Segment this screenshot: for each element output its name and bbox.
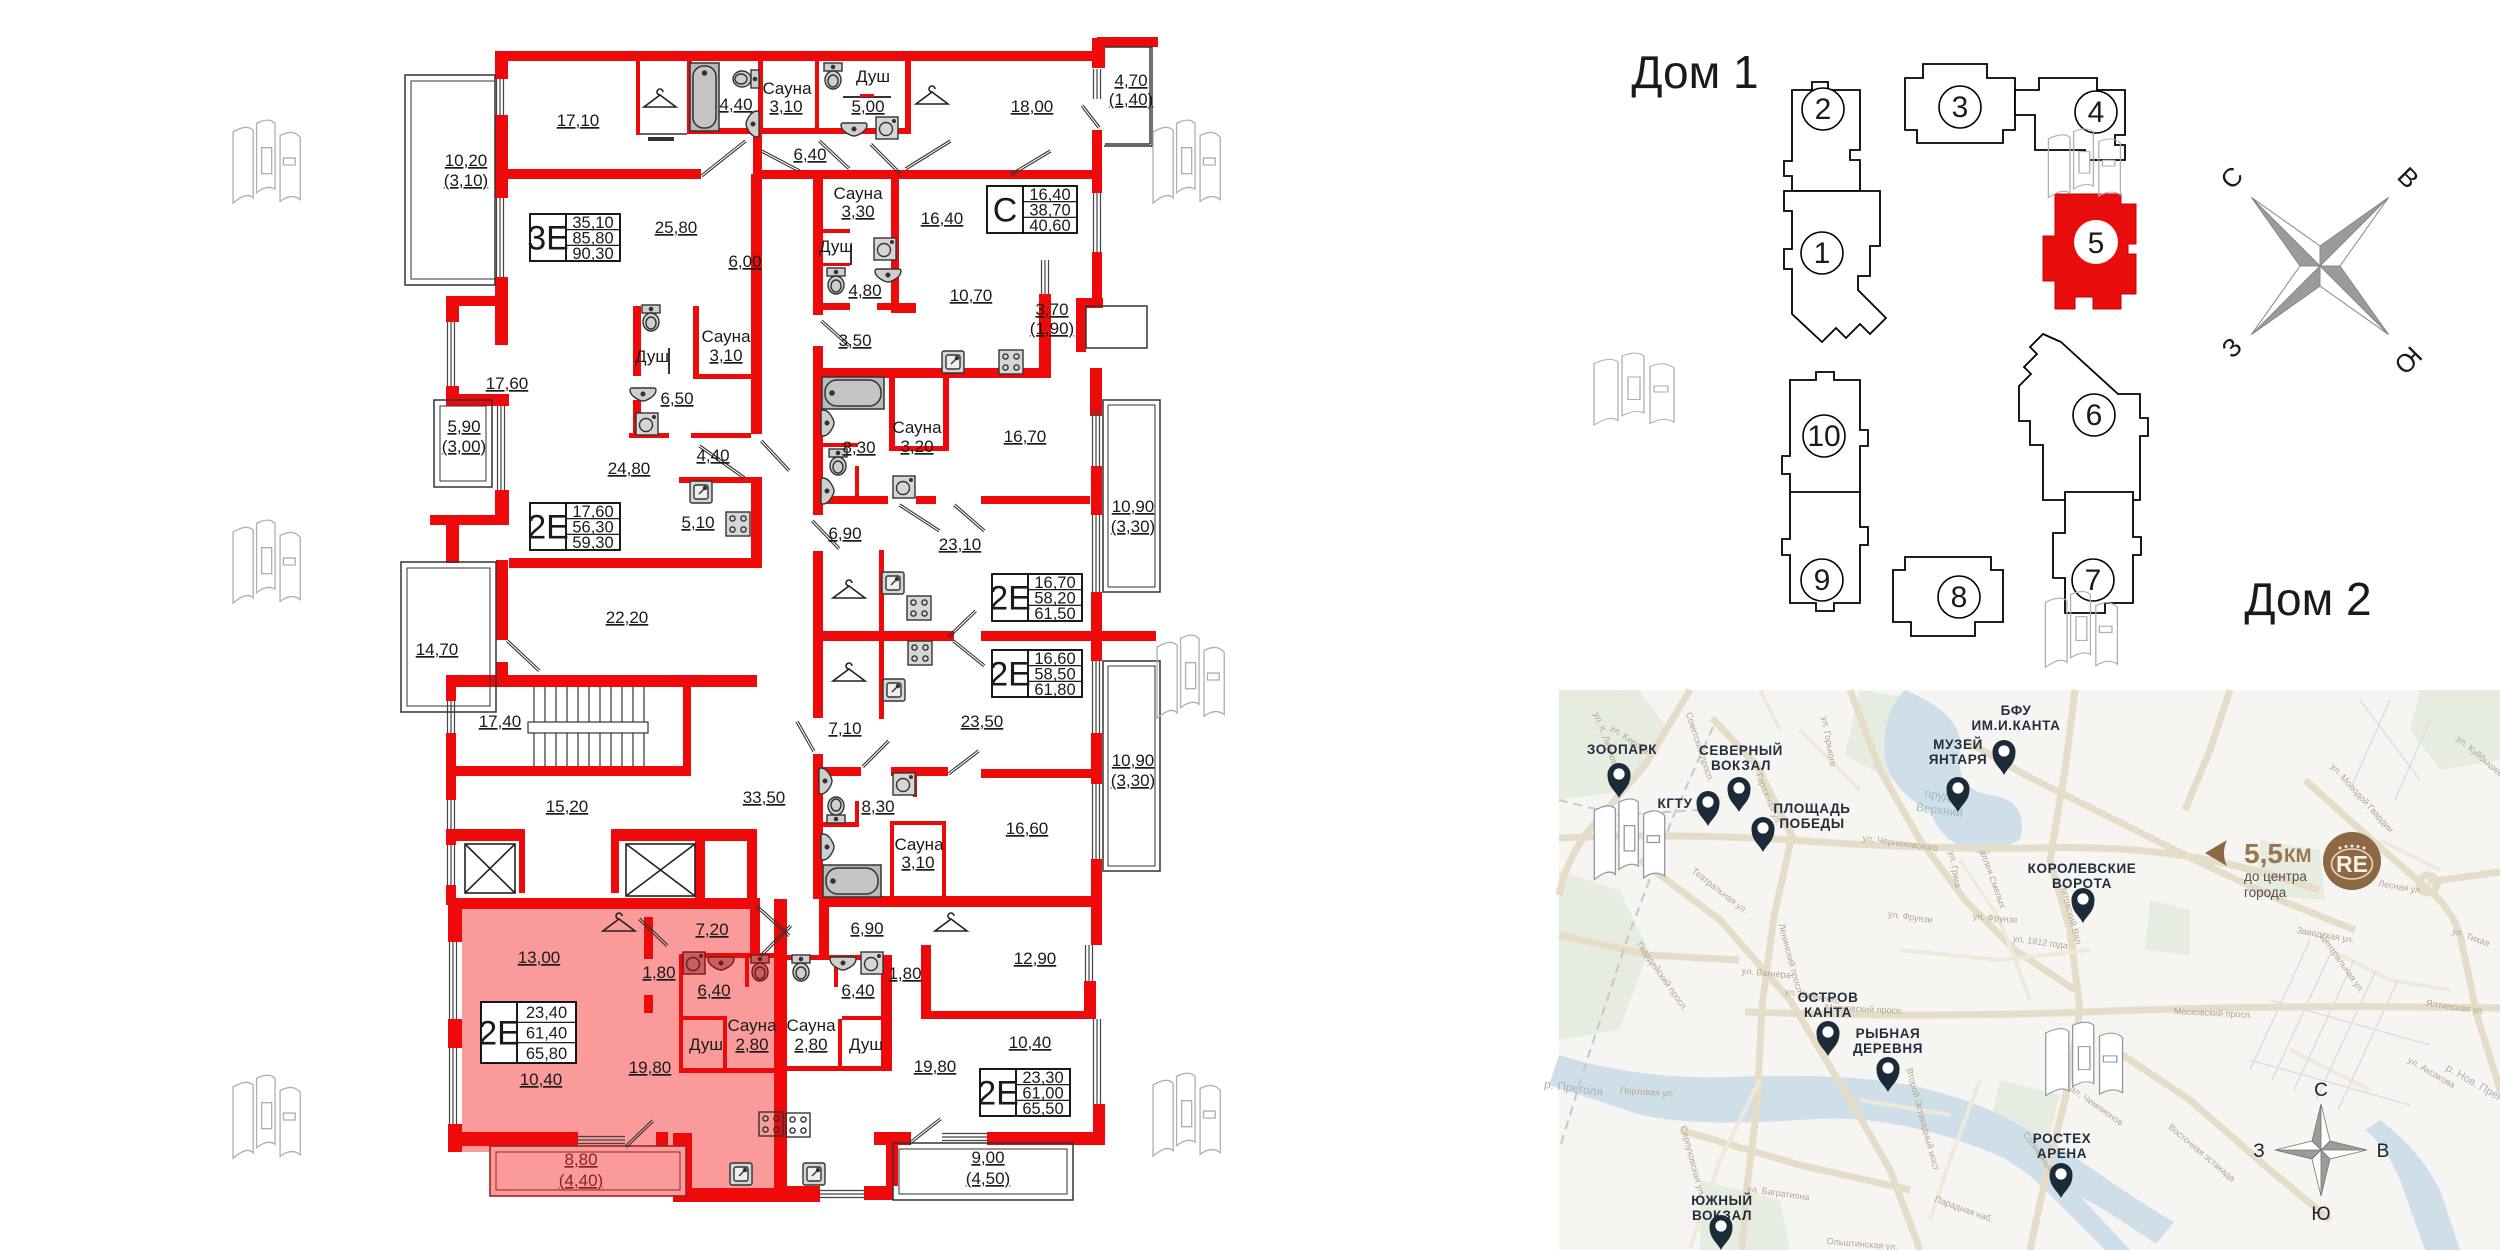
svg-text:2Е: 2Е <box>989 656 1031 694</box>
svg-text:(4,40): (4,40) <box>559 1171 603 1190</box>
svg-text:8,30: 8,30 <box>861 797 894 816</box>
svg-text:9,00: 9,00 <box>971 1148 1004 1167</box>
svg-text:4,70: 4,70 <box>1114 71 1147 90</box>
svg-text:2Е: 2Е <box>989 580 1031 618</box>
svg-text:ОСТРОВ: ОСТРОВ <box>1798 990 1859 1005</box>
svg-text:8: 8 <box>1951 581 1968 614</box>
svg-text:3,10: 3,10 <box>901 853 934 872</box>
svg-text:КАНТА: КАНТА <box>1804 1005 1852 1020</box>
svg-text:65,50: 65,50 <box>1022 1100 1063 1118</box>
svg-text:АРЕНА: АРЕНА <box>2037 1146 2087 1161</box>
svg-text:59,30: 59,30 <box>572 534 613 552</box>
svg-text:С: С <box>993 192 1018 230</box>
svg-text:4: 4 <box>2088 96 2105 129</box>
svg-text:КОРОЛЕВСКИЕ: КОРОЛЕВСКИЕ <box>2028 861 2137 876</box>
svg-text:ВОКЗАЛ: ВОКЗАЛ <box>1711 758 1771 773</box>
svg-text:23,50: 23,50 <box>961 712 1004 731</box>
svg-text:16,40: 16,40 <box>921 209 964 228</box>
svg-text:3: 3 <box>1952 91 1969 124</box>
svg-text:90,30: 90,30 <box>572 245 613 263</box>
svg-text:(3,30): (3,30) <box>1111 517 1155 536</box>
svg-text:10,90: 10,90 <box>1112 751 1155 770</box>
svg-text:Ю: Ю <box>2311 1204 2330 1225</box>
svg-text:8,30: 8,30 <box>842 438 875 457</box>
svg-text:СЕВЕРНЫЙ: СЕВЕРНЫЙ <box>1699 743 1783 758</box>
svg-text:(4,50): (4,50) <box>966 1169 1010 1188</box>
svg-text:10: 10 <box>1807 420 1840 453</box>
svg-text:23,10: 23,10 <box>939 535 982 554</box>
svg-text:9: 9 <box>1814 564 1831 597</box>
svg-text:3,10: 3,10 <box>709 346 742 365</box>
svg-text:2Е: 2Е <box>977 1075 1019 1113</box>
svg-text:5,5: 5,5 <box>2244 838 2283 869</box>
svg-text:Сауна: Сауна <box>892 418 942 437</box>
svg-text:2Е: 2Е <box>478 1015 520 1053</box>
svg-text:РЫБНАЯ: РЫБНАЯ <box>1856 1026 1921 1041</box>
svg-text:С: С <box>2314 1080 2328 1101</box>
svg-text:МУЗЕЙ: МУЗЕЙ <box>1933 737 1983 752</box>
svg-text:Дом 1: Дом 1 <box>1631 46 1758 98</box>
svg-text:7,20: 7,20 <box>695 920 728 939</box>
svg-text:Сауна: Сауна <box>727 1016 777 1035</box>
svg-text:40,60: 40,60 <box>1029 217 1070 235</box>
svg-text:10,90: 10,90 <box>1112 497 1155 516</box>
svg-text:З: З <box>2253 1141 2264 1162</box>
svg-text:Сауна: Сауна <box>701 327 751 346</box>
svg-text:24,80: 24,80 <box>608 459 651 478</box>
svg-text:1,80: 1,80 <box>888 964 921 983</box>
svg-text:19,80: 19,80 <box>914 1057 957 1076</box>
svg-text:ИМ.И.КАНТА: ИМ.И.КАНТА <box>1971 718 2060 733</box>
svg-text:3,50: 3,50 <box>838 331 871 350</box>
svg-text:2,80: 2,80 <box>735 1035 768 1054</box>
svg-text:17,10: 17,10 <box>557 111 600 130</box>
svg-text:2: 2 <box>1815 93 1832 126</box>
svg-text:6,40: 6,40 <box>697 981 730 1000</box>
svg-text:5,00: 5,00 <box>851 97 884 116</box>
svg-text:61,50: 61,50 <box>1034 605 1075 623</box>
svg-text:10,70: 10,70 <box>950 286 993 305</box>
svg-text:3,30: 3,30 <box>841 202 874 221</box>
svg-text:РОСТЕХ: РОСТЕХ <box>2033 1131 2092 1146</box>
svg-text:(3,30): (3,30) <box>1111 771 1155 790</box>
svg-text:БФУ: БФУ <box>2001 703 2032 718</box>
svg-text:12,90: 12,90 <box>1014 949 1057 968</box>
svg-text:13,00: 13,00 <box>518 948 561 967</box>
svg-text:18,00: 18,00 <box>1011 97 1054 116</box>
svg-text:6,40: 6,40 <box>841 981 874 1000</box>
svg-text:до центра: до центра <box>2244 869 2307 884</box>
svg-text:3,70: 3,70 <box>1035 300 1068 319</box>
svg-text:5: 5 <box>2088 227 2105 260</box>
svg-text:5,90: 5,90 <box>447 417 480 436</box>
svg-text:(1,90): (1,90) <box>1030 319 1074 338</box>
svg-text:1,80: 1,80 <box>642 963 675 982</box>
svg-text:4,40: 4,40 <box>696 446 729 465</box>
svg-text:Душ: Душ <box>689 1035 723 1054</box>
svg-text:Сауна: Сауна <box>786 1016 836 1035</box>
svg-text:Душ: Душ <box>635 347 669 366</box>
svg-text:16,60: 16,60 <box>1006 819 1049 838</box>
svg-text:Душ: Душ <box>849 1035 883 1054</box>
svg-text:17,60: 17,60 <box>486 374 529 393</box>
svg-text:61,40: 61,40 <box>526 1025 567 1043</box>
svg-text:6,90: 6,90 <box>828 524 861 543</box>
svg-text:(3,10): (3,10) <box>444 171 488 190</box>
svg-text:ЯНТАРЯ: ЯНТАРЯ <box>1929 752 1988 767</box>
svg-text:2,80: 2,80 <box>794 1035 827 1054</box>
svg-text:5,10: 5,10 <box>681 513 714 532</box>
svg-text:города: города <box>2244 885 2287 900</box>
svg-text:КГТУ: КГТУ <box>1658 796 1693 811</box>
svg-text:2Е: 2Е <box>527 509 569 547</box>
svg-text:4,40: 4,40 <box>719 95 752 114</box>
svg-text:10,20: 10,20 <box>445 151 488 170</box>
svg-text:В: В <box>2377 1141 2390 1162</box>
svg-text:10,40: 10,40 <box>520 1070 563 1089</box>
svg-text:ЗООПАРК: ЗООПАРК <box>1587 742 1657 757</box>
svg-text:Сауна: Сауна <box>833 184 883 203</box>
svg-text:6,00: 6,00 <box>728 252 761 271</box>
svg-text:6,40: 6,40 <box>793 145 826 164</box>
svg-text:15,20: 15,20 <box>546 797 589 816</box>
svg-text:Сауна: Сауна <box>894 835 944 854</box>
svg-text:65,80: 65,80 <box>526 1045 567 1063</box>
svg-text:19,80: 19,80 <box>629 1058 672 1077</box>
svg-text:61,80: 61,80 <box>1034 681 1075 699</box>
svg-text:4,80: 4,80 <box>848 281 881 300</box>
svg-text:23,40: 23,40 <box>526 1004 567 1022</box>
svg-text:(3,00): (3,00) <box>442 437 486 456</box>
svg-text:6,50: 6,50 <box>660 389 693 408</box>
svg-text:Душ: Душ <box>856 67 890 86</box>
svg-text:КМ: КМ <box>2284 846 2311 867</box>
svg-text:3,20: 3,20 <box>900 437 933 456</box>
svg-text:8,80: 8,80 <box>564 1150 597 1169</box>
svg-text:25,80: 25,80 <box>655 218 698 237</box>
svg-text:ПОБЕДЫ: ПОБЕДЫ <box>1779 816 1844 831</box>
svg-text:3Е: 3Е <box>527 220 569 258</box>
svg-text:ДЕРЕВНЯ: ДЕРЕВНЯ <box>1853 1041 1923 1056</box>
svg-text:17,40: 17,40 <box>479 712 522 731</box>
svg-text:16,70: 16,70 <box>1004 427 1047 446</box>
svg-text:ЮЖНЫЙ: ЮЖНЫЙ <box>1691 1193 1752 1208</box>
svg-text:10,40: 10,40 <box>1009 1033 1052 1052</box>
svg-text:33,50: 33,50 <box>743 788 786 807</box>
svg-text:RE: RE <box>2336 851 2368 877</box>
svg-text:6,90: 6,90 <box>850 919 883 938</box>
svg-text:ПЛОЩАДЬ: ПЛОЩАДЬ <box>1773 801 1850 816</box>
svg-text:Дом 2: Дом 2 <box>2244 573 2371 625</box>
svg-text:Сауна: Сауна <box>762 79 812 98</box>
svg-text:14,70: 14,70 <box>416 640 459 659</box>
svg-text:(1,40): (1,40) <box>1109 90 1153 109</box>
svg-text:7,10: 7,10 <box>828 719 861 738</box>
svg-text:22,20: 22,20 <box>606 608 649 627</box>
svg-text:Душ: Душ <box>819 237 853 256</box>
svg-text:6: 6 <box>2086 399 2103 432</box>
svg-text:3,10: 3,10 <box>769 97 802 116</box>
svg-text:1: 1 <box>1814 237 1831 270</box>
